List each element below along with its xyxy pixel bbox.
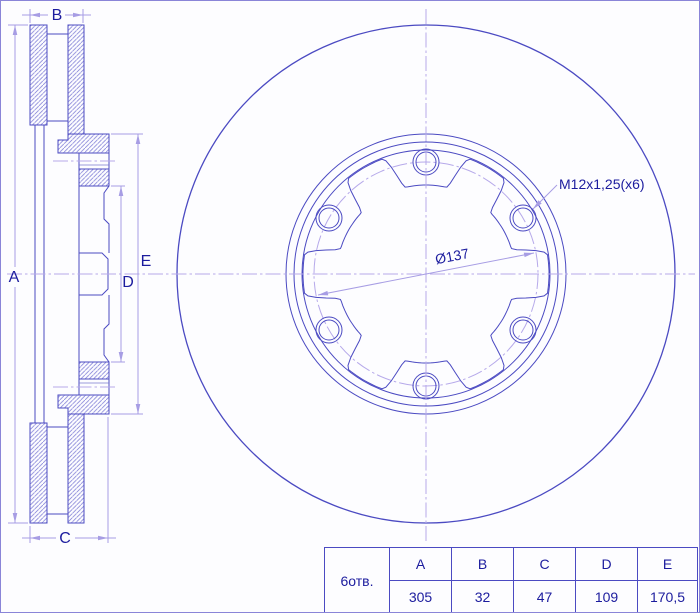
value-d: 109	[576, 581, 638, 613]
dimension-arrowhead	[119, 352, 124, 362]
hub-boss-bottom	[79, 362, 109, 379]
col-header-a: A	[390, 548, 452, 581]
bolt-circle-dia-annotation: Ø137	[434, 245, 471, 267]
dim-label-c: C	[59, 530, 71, 547]
dimension-arrowhead	[73, 13, 83, 18]
inboard-plate-bottom	[68, 414, 84, 523]
col-header-c: C	[514, 548, 576, 581]
technical-drawing: A B C D E M12x1,25(x6) Ø137	[1, 1, 700, 613]
dimension-arrowhead	[136, 134, 141, 144]
inboard-plate-top	[68, 25, 84, 134]
dimension-lines	[8, 9, 557, 543]
thread-annotation: M12x1,25(x6)	[559, 176, 645, 192]
dimension-arrowhead	[119, 186, 124, 196]
dim-label-b: B	[52, 7, 63, 24]
dim-label-a: A	[9, 269, 20, 286]
value-c: 47	[514, 581, 576, 613]
hub-boss-top	[79, 169, 109, 186]
dim-label-d: D	[122, 274, 134, 291]
spec-table: 6отв. A B C D E 305 32 47 109 170,5	[324, 547, 698, 613]
outboard-plate-top	[30, 25, 47, 125]
dimension-arrows	[13, 13, 542, 541]
hub-flange-bottom	[58, 395, 109, 414]
hub-flange-top	[58, 134, 109, 153]
value-b: 32	[452, 581, 514, 613]
holes-count-label: 6отв.	[325, 548, 390, 613]
col-header-d: D	[576, 548, 638, 581]
dimension-arrowhead	[30, 536, 40, 541]
col-header-e: E	[638, 548, 698, 581]
dimension-arrowhead	[30, 13, 40, 18]
dimension-arrowhead	[524, 251, 535, 257]
dimension-arrowhead	[318, 291, 329, 297]
dimension-arrowhead	[136, 404, 141, 414]
dim-label-e: E	[141, 253, 152, 270]
value-e: 170,5	[638, 581, 698, 613]
dimension-arrowhead	[98, 536, 108, 541]
dimension-arrowhead	[13, 25, 18, 35]
outboard-plate-bottom	[30, 423, 47, 523]
value-a: 305	[390, 581, 452, 613]
col-header-b: B	[452, 548, 514, 581]
drawing-canvas: A B C D E M12x1,25(x6) Ø137 6отв. A B C …	[0, 0, 700, 613]
dimension-arrowhead	[13, 513, 18, 523]
